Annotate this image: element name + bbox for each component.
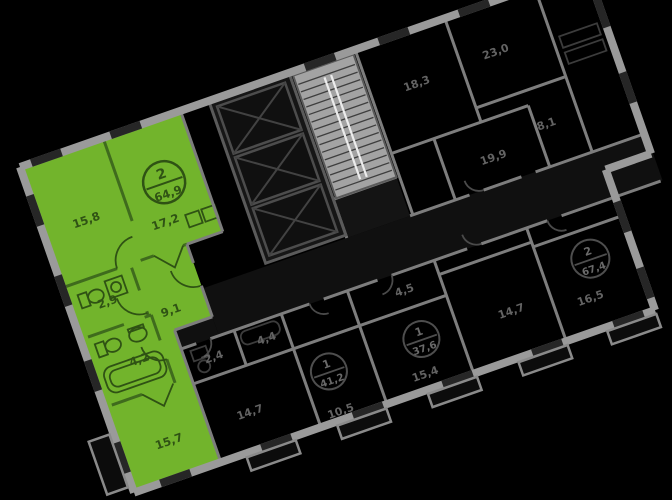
floor-plan-stage: 2 64,9 15,8 17,2 2,9 9,1 4,2 15,7 1 41,2… (0, 0, 672, 500)
floor-plan-svg: 2 64,9 15,8 17,2 2,9 9,1 4,2 15,7 1 41,2… (0, 0, 672, 500)
